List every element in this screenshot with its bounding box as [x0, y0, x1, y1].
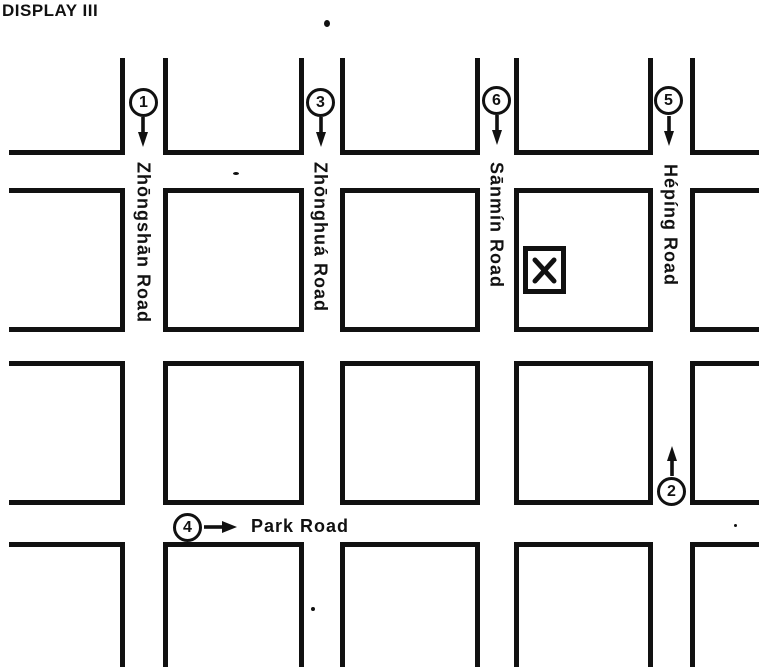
city-block	[514, 361, 653, 505]
city-block	[340, 542, 480, 667]
scan-speck	[233, 172, 239, 175]
city-block	[340, 361, 480, 505]
route-marker-label: 5	[664, 93, 673, 109]
arrow-down-icon	[491, 115, 503, 145]
city-block	[9, 58, 125, 155]
arrow-up-icon	[666, 446, 678, 476]
city-block	[690, 361, 759, 505]
route-marker-label: 4	[183, 520, 192, 536]
street-map-display: DISPLAY III Zhōngshān Road Zhōnghuá Road…	[0, 0, 764, 668]
road-label-zhongshan: Zhōngshān Road	[133, 162, 154, 323]
arrow-right-icon	[204, 520, 238, 534]
road-label-zhonghua: Zhōnghuá Road	[310, 162, 331, 312]
city-block	[340, 58, 480, 155]
page-title: DISPLAY III	[2, 1, 98, 21]
route-marker-2: 2	[657, 477, 686, 506]
arrow-down-icon	[137, 117, 149, 147]
city-block	[9, 361, 125, 505]
scan-speck	[324, 20, 330, 27]
city-block	[514, 542, 653, 667]
arrow-down-icon	[663, 116, 675, 146]
scan-speck	[734, 524, 737, 527]
route-marker-4: 4	[173, 513, 202, 542]
route-marker-label: 3	[316, 95, 325, 111]
road-label-sanmin: Sānmín Road	[486, 162, 507, 288]
city-block	[9, 188, 125, 332]
city-block	[514, 58, 653, 155]
scan-speck	[311, 607, 315, 611]
road-label-heping: Hépíng Road	[660, 164, 681, 286]
arrow-down-icon	[315, 117, 327, 147]
road-label-park: Park Road	[251, 516, 349, 537]
city-block	[9, 542, 125, 667]
city-block	[690, 188, 759, 332]
route-marker-3: 3	[306, 88, 335, 117]
city-block	[340, 188, 480, 332]
route-marker-label: 1	[139, 95, 148, 111]
route-marker-label: 2	[667, 484, 676, 500]
route-marker-5: 5	[654, 86, 683, 115]
city-block	[690, 542, 759, 667]
x-marker-icon	[528, 251, 561, 289]
route-marker-6: 6	[482, 86, 511, 115]
route-marker-label: 6	[492, 93, 501, 109]
city-block	[690, 58, 759, 155]
city-block	[163, 542, 304, 667]
route-marker-1: 1	[129, 88, 158, 117]
city-block	[163, 188, 304, 332]
city-block	[163, 58, 304, 155]
city-block	[163, 361, 304, 505]
destination-box	[523, 246, 566, 294]
